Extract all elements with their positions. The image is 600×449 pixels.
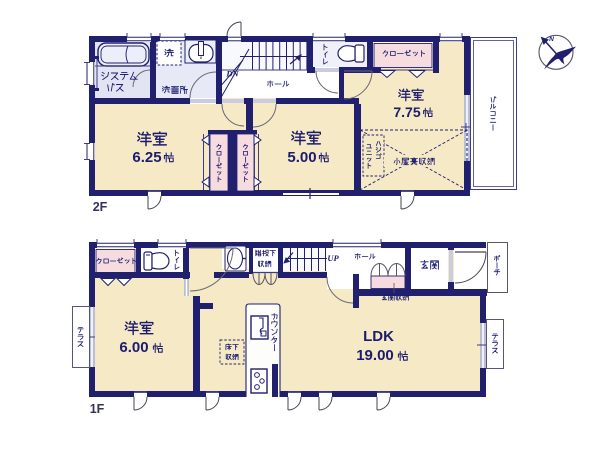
svg-text:2F: 2F: [93, 200, 108, 214]
svg-text:7.75: 7.75: [393, 104, 420, 120]
svg-text:N: N: [549, 36, 554, 43]
svg-text:LDK: LDK: [363, 328, 394, 345]
svg-text:6.00: 6.00: [119, 339, 148, 356]
svg-text:5.00: 5.00: [287, 149, 316, 166]
svg-text:1F: 1F: [90, 402, 105, 416]
svg-text:DN: DN: [225, 69, 239, 79]
svg-text:6.25: 6.25: [132, 149, 161, 166]
svg-text:19.00: 19.00: [356, 347, 394, 364]
svg-text:UP: UP: [327, 253, 339, 263]
